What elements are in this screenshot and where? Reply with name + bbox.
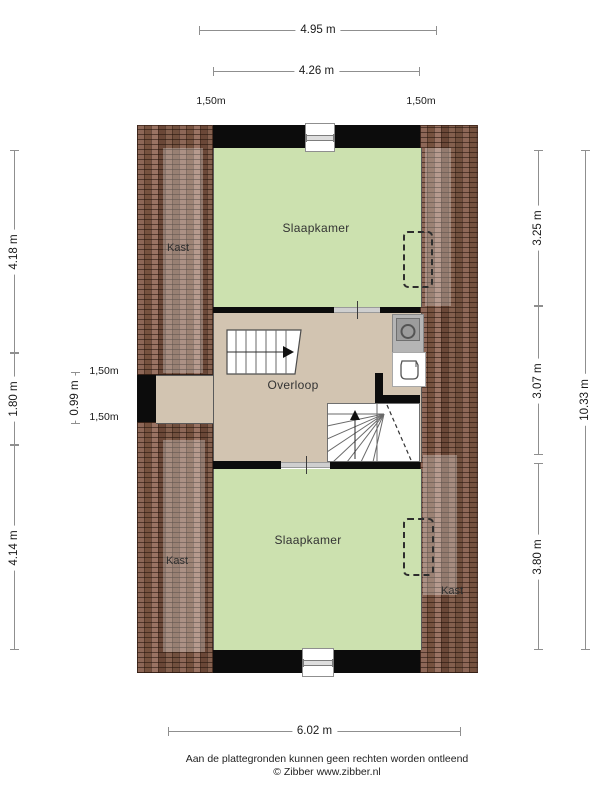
room-label-kast-bottom-left: Kast — [166, 555, 188, 567]
dimension-left-middle-label: 1.80 m — [7, 376, 21, 421]
dimension-left-lower-label: 4.14 m — [7, 525, 21, 570]
dormer-outline-bottom — [403, 518, 434, 576]
wall-overloop-north-right — [380, 307, 420, 313]
dimension-right-upper-label: 3.25 m — [531, 205, 545, 250]
staircase-icon-loft — [226, 329, 312, 375]
dimension-left-upper-label: 4.18 m — [7, 229, 21, 274]
wall-dormer-left — [137, 375, 156, 422]
dimension-top-inner-label: 4.26 m — [294, 64, 339, 78]
dimension-dormer-depth-label: 0.99 m — [68, 375, 82, 420]
water-fixture-icon — [392, 352, 426, 387]
room-label-overloop: Overloop — [267, 378, 318, 392]
room-label-kast-bottom-right: Kast — [441, 585, 463, 597]
dimension-top-right-roof-label: 1,50m — [406, 95, 435, 107]
kast-zone-bottom-left — [163, 440, 205, 652]
dimension-right-middle-label: 3.07 m — [531, 358, 545, 403]
dimension-dormer-lower-roof-label: 1,50m — [89, 411, 118, 423]
dormer-floor — [156, 375, 213, 424]
dimension-top-left-roof-label: 1,50m — [196, 95, 225, 107]
floorplan-canvas: 4.95 m 4.26 m 1,50m 1,50m 4.18 m 1.80 m … — [0, 0, 600, 800]
window-icon-top — [305, 123, 335, 152]
dimension-right-lower-label: 3.80 m — [531, 534, 545, 579]
room-slaapkamer-bottom — [213, 469, 422, 650]
footer: Aan de plattegronden kunnen geen rechten… — [54, 753, 600, 779]
wall-overloop-south-right — [330, 461, 420, 469]
wall-stairwell-vertical — [375, 373, 383, 403]
door-opening-top-bedroom — [334, 307, 380, 313]
wall-stairwell-horizontal — [383, 395, 420, 403]
dormer-outline-top — [403, 231, 433, 288]
dimension-right-total-label: 10.33 m — [578, 374, 592, 426]
footer-credit: © Zibber www.zibber.nl — [54, 766, 600, 779]
dimension-bottom-total-label: 6.02 m — [292, 724, 337, 738]
dimension-dormer-upper-roof-label: 1,50m — [89, 365, 118, 377]
window-icon-bottom — [302, 648, 334, 677]
winder-staircase-icon — [327, 403, 420, 462]
footer-disclaimer: Aan de plattegronden kunnen geen rechten… — [54, 753, 600, 766]
washing-machine-icon — [392, 314, 424, 354]
wall-overloop-north-left — [213, 307, 334, 313]
room-label-kast-top-left: Kast — [167, 242, 189, 254]
kast-zone-top-left — [163, 148, 203, 373]
door-opening-bottom-bedroom — [281, 462, 330, 468]
wall-overloop-south-left — [213, 461, 281, 469]
dimension-top-outer-label: 4.95 m — [295, 23, 340, 37]
room-label-slaapkamer-top: Slaapkamer — [282, 221, 349, 235]
room-label-slaapkamer-bottom: Slaapkamer — [274, 533, 341, 547]
